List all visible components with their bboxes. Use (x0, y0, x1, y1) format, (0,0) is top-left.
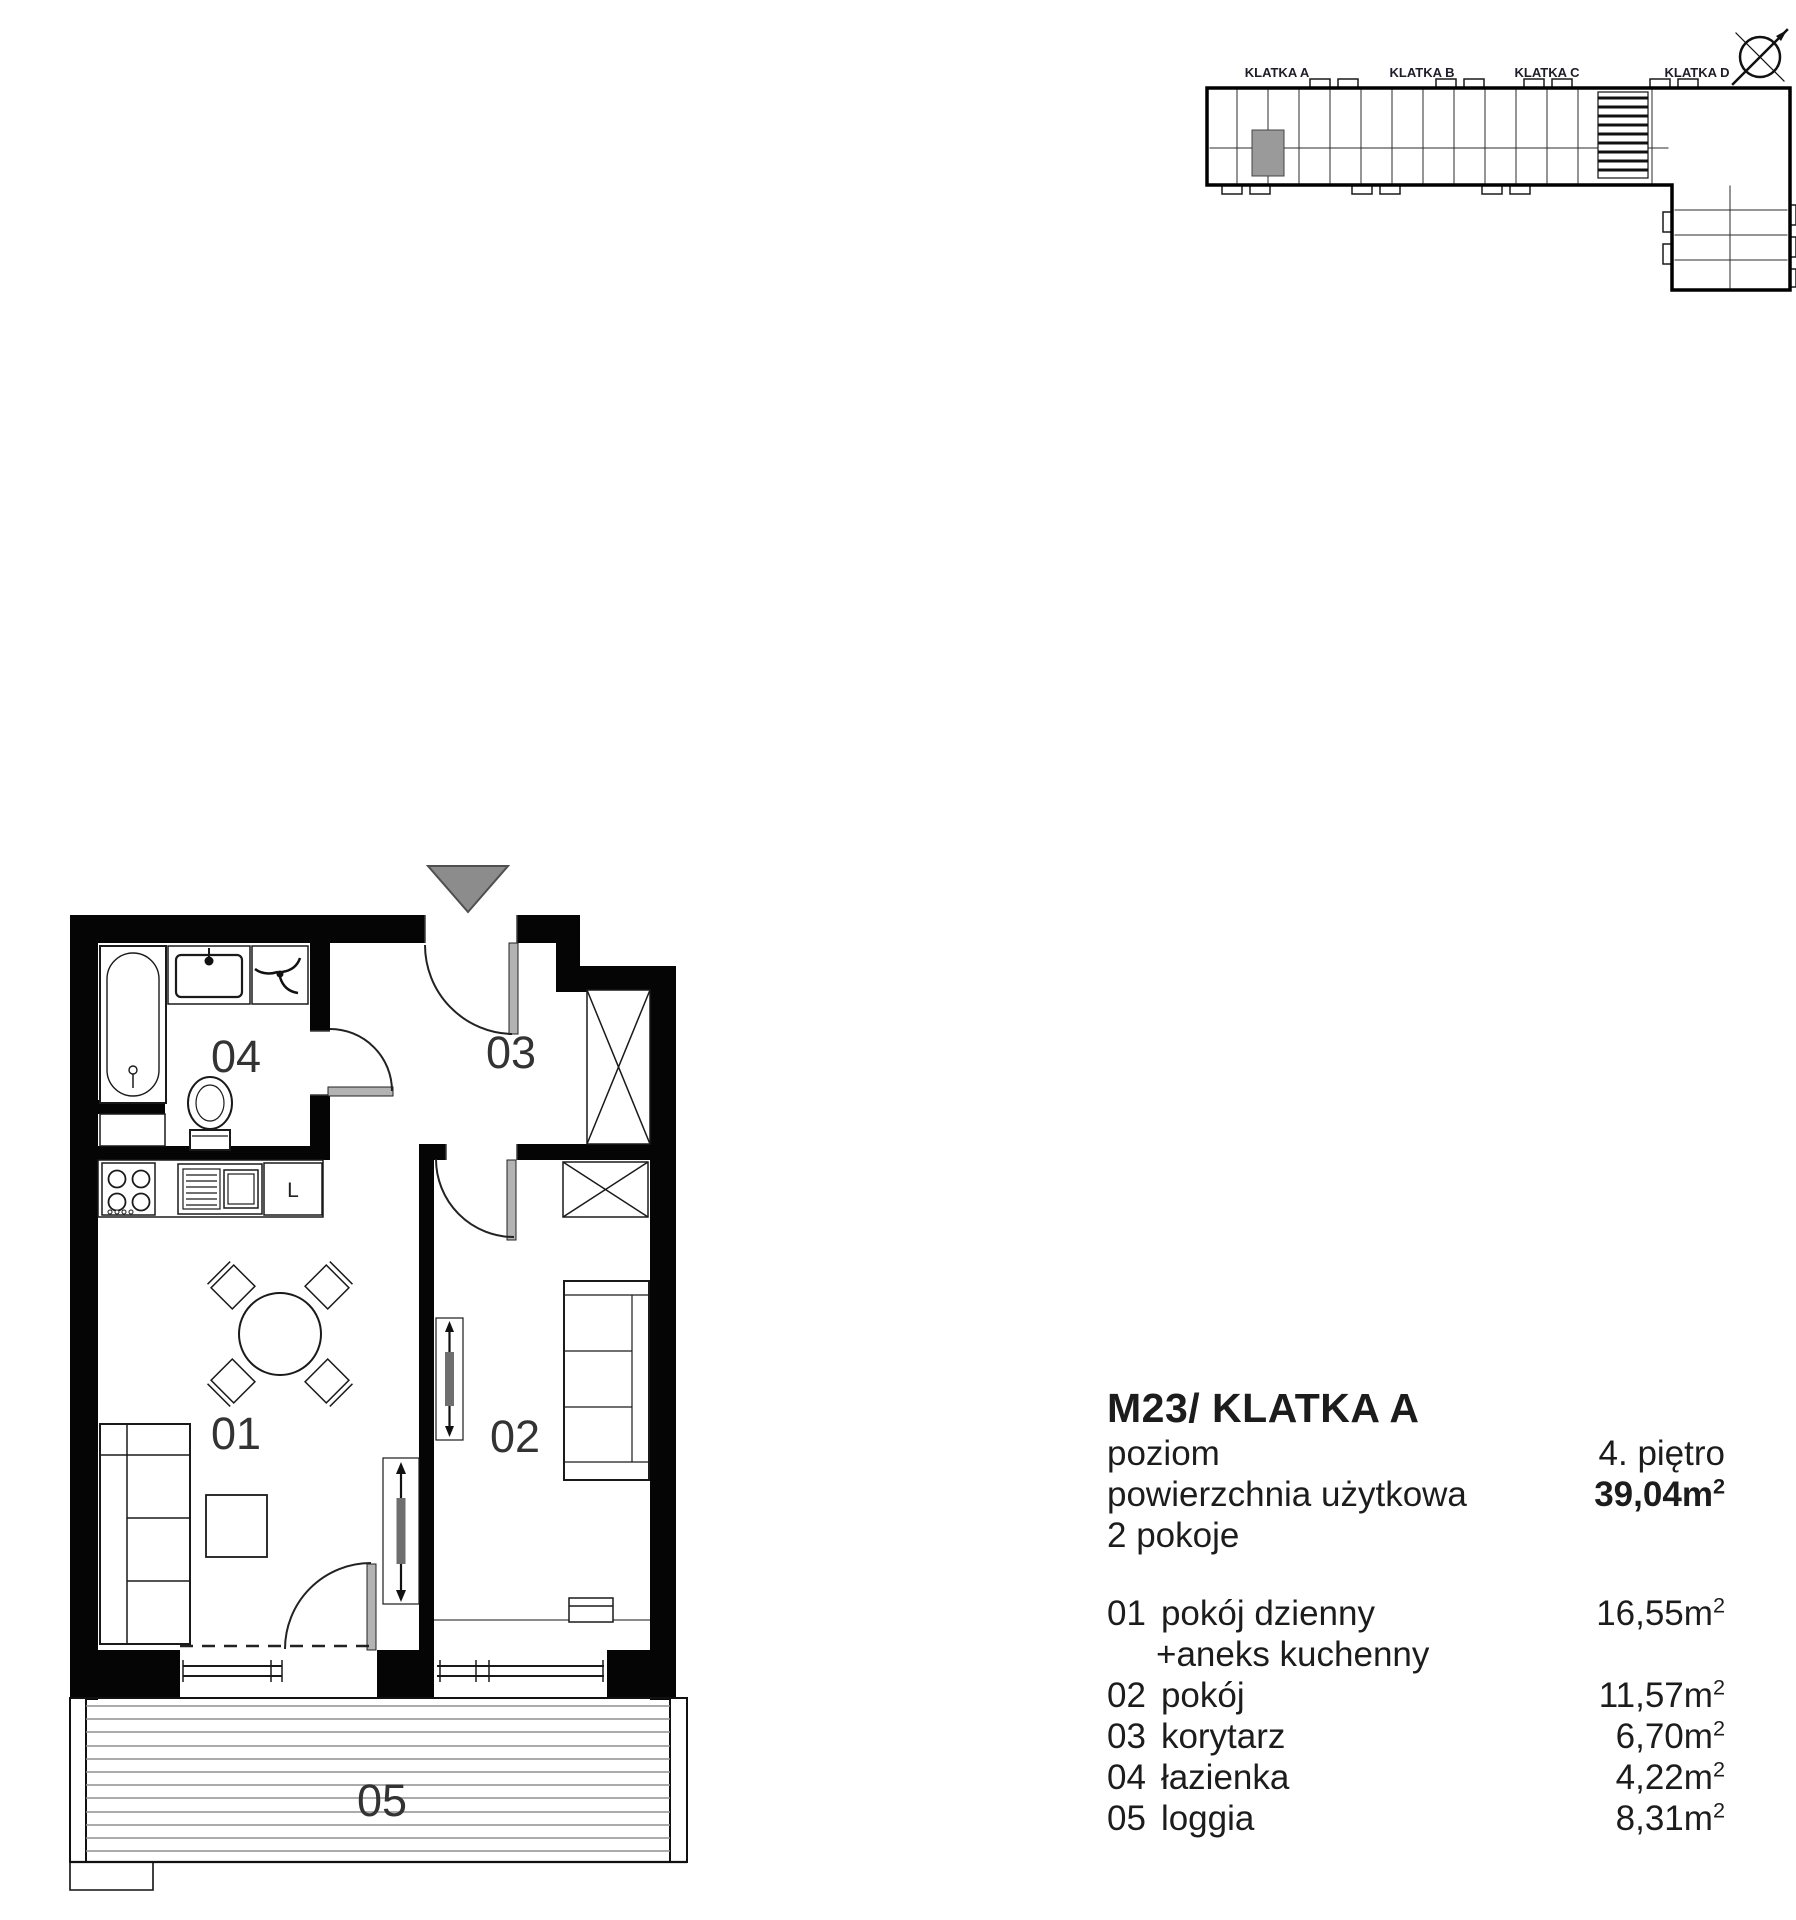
bedroom-wardrobe (563, 1162, 648, 1217)
bathtub (100, 946, 166, 1103)
usable-area-label: powierzchnia użytkowa (1107, 1474, 1467, 1515)
loggia-step-edge (70, 1862, 153, 1890)
stove (102, 1163, 155, 1215)
room-label-loggia: 05 (357, 1775, 407, 1826)
balcony-door-arc (285, 1563, 371, 1649)
level-row: poziom 4. piętro (1107, 1433, 1725, 1474)
balcony-door (285, 1563, 376, 1650)
washbasin (168, 946, 250, 1004)
klatka-d-label: KLATKA D (1665, 65, 1730, 80)
level-label: poziom (1107, 1433, 1220, 1474)
bath-cabinet (100, 1114, 165, 1146)
bathroom-door (328, 1029, 393, 1096)
chair (305, 1262, 352, 1309)
klatka-b-label: KLATKA B (1390, 65, 1455, 80)
radiator-living (383, 1458, 419, 1604)
legend-area-02: 11,57m2 (1599, 1675, 1725, 1716)
klatka-a-label: KLATKA A (1245, 65, 1310, 80)
bedside-shelf (569, 1598, 613, 1622)
chair (305, 1359, 352, 1406)
usable-area-value: 39,04m2 (1594, 1474, 1725, 1515)
entrance-door-arc (425, 945, 512, 1034)
legend-area-03: 6,70m2 (1616, 1716, 1725, 1757)
legend-area-04: 4,22m2 (1616, 1757, 1725, 1798)
legend-row-03: 03korytarz 6,70m2 (1107, 1716, 1725, 1757)
chair (208, 1262, 255, 1309)
legend-row-02: 02pokój 11,57m2 (1107, 1675, 1725, 1716)
legend-row-01b: +aneks kuchenny (1107, 1634, 1725, 1675)
legend-area-01: 16,55m2 (1596, 1593, 1725, 1634)
apartment-info-panel: M23/ KLATKA A poziom 4. piętro powierzch… (1107, 1383, 1725, 1839)
radiator-bedroom (436, 1318, 463, 1440)
legend-area-05: 8,31m2 (1616, 1798, 1725, 1839)
apartment-title: M23/ KLATKA A (1107, 1383, 1725, 1433)
window-living (183, 1660, 282, 1682)
hall-wardrobe (587, 990, 650, 1144)
room-label-hall: 03 (486, 1027, 536, 1078)
dining-table (208, 1262, 353, 1407)
bedroom-door-arc (436, 1159, 514, 1237)
bedroom-door (436, 1159, 516, 1240)
rooms-count-row: 2 pokoje (1107, 1515, 1725, 1556)
highlighted-unit (1252, 130, 1284, 176)
washing-machine (252, 946, 308, 1004)
fridge-letter: L (287, 1179, 299, 1202)
room-label-bedroom: 02 (490, 1411, 540, 1462)
building-minimap: KLATKA A KLATKA B KLATKA C KLATKA D (1207, 30, 1796, 290)
entrance-marker-icon (428, 866, 508, 912)
entrance-door (425, 943, 518, 1034)
chair (208, 1359, 255, 1406)
apartment-plan: L (70, 866, 687, 1890)
room-label-living: 01 (211, 1408, 261, 1459)
compass-icon (1733, 30, 1787, 84)
toilet (188, 1077, 232, 1150)
level-value: 4. piętro (1599, 1433, 1725, 1474)
coffee-table (206, 1495, 267, 1557)
kitchen-sink (178, 1164, 262, 1214)
legend-row-04: 04łazienka 4,22m2 (1107, 1757, 1725, 1798)
bedroom-sofa (564, 1281, 649, 1480)
stairwell (1598, 92, 1648, 178)
rooms-count: 2 pokoje (1107, 1515, 1239, 1556)
window-bedroom (437, 1660, 604, 1682)
floorplan-page: { "minimap": { "labels": ["KLATKA A", "K… (0, 0, 1796, 1920)
sofa (100, 1424, 190, 1644)
bathroom-door-arc (330, 1029, 392, 1091)
legend-row-01: 01pokój dzienny 16,55m2 (1107, 1593, 1725, 1634)
usable-area-row: powierzchnia użytkowa 39,04m2 (1107, 1474, 1725, 1515)
room-label-bath: 04 (211, 1031, 261, 1082)
legend-row-05: 05loggia 8,31m2 (1107, 1798, 1725, 1839)
spacer (1107, 1556, 1725, 1593)
klatka-c-label: KLATKA C (1515, 65, 1581, 80)
